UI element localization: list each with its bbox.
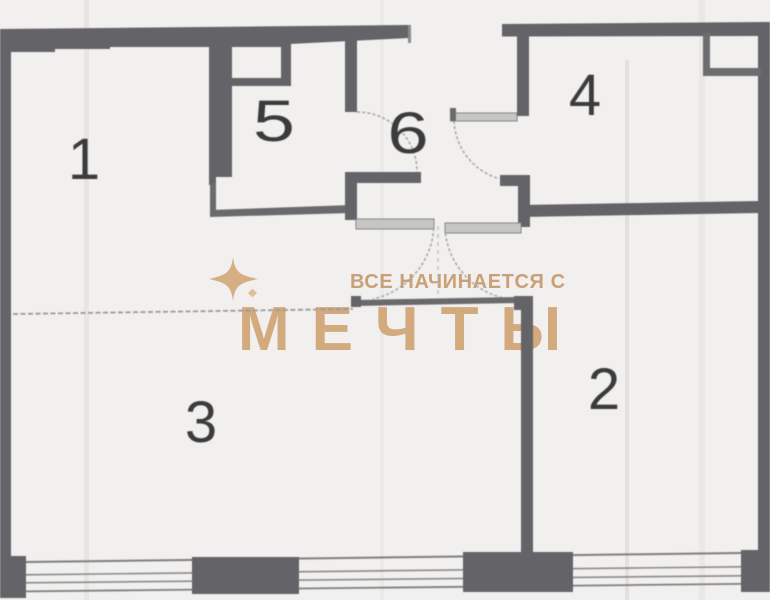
svg-text:4: 4: [569, 63, 601, 128]
svg-text:1: 1: [68, 127, 100, 192]
svg-text:5: 5: [253, 89, 295, 154]
svg-text:2: 2: [588, 357, 620, 422]
svg-text:3: 3: [185, 390, 217, 455]
svg-text:ВСЕ НАЧИНАЕТСЯ С: ВСЕ НАЧИНАЕТСЯ С: [350, 271, 566, 293]
svg-text:6: 6: [387, 102, 428, 166]
